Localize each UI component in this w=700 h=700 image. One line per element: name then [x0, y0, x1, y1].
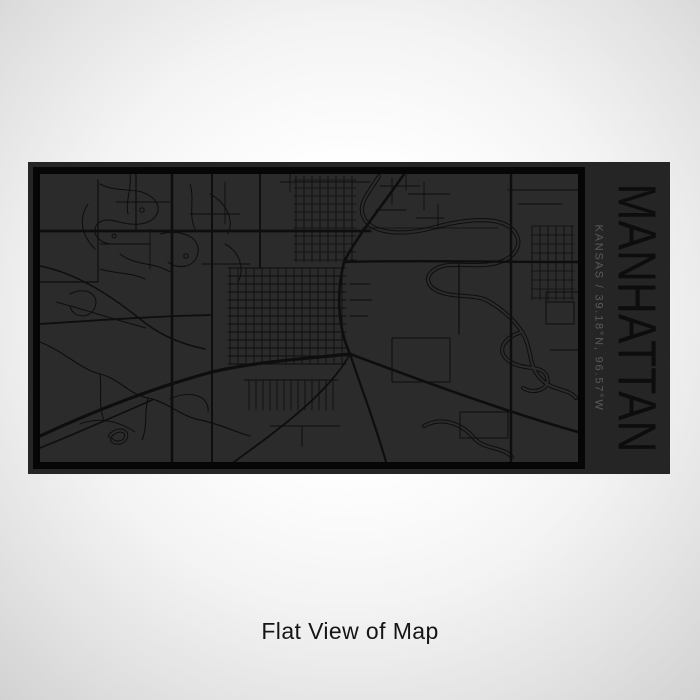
title-panel: MANHATTAN KANSAS / 39.18°N, 96.57°W	[585, 162, 670, 474]
coordinates-subtitle: KANSAS / 39.18°N, 96.57°W	[592, 154, 604, 482]
scene-background: MANHATTAN KANSAS / 39.18°N, 96.57°W Flat…	[0, 0, 700, 700]
street-map-graphic	[40, 174, 578, 462]
major-roads	[40, 174, 578, 462]
rotated-text-block: MANHATTAN KANSAS / 39.18°N, 96.57°W	[592, 154, 663, 482]
product-card: MANHATTAN KANSAS / 39.18°N, 96.57°W	[28, 162, 670, 474]
map-frame	[33, 167, 585, 469]
downtown-street-grid	[228, 268, 372, 410]
northwest-streets	[82, 174, 250, 282]
city-title: MANHATTAN	[609, 184, 663, 453]
view-caption: Flat View of Map	[0, 618, 700, 645]
